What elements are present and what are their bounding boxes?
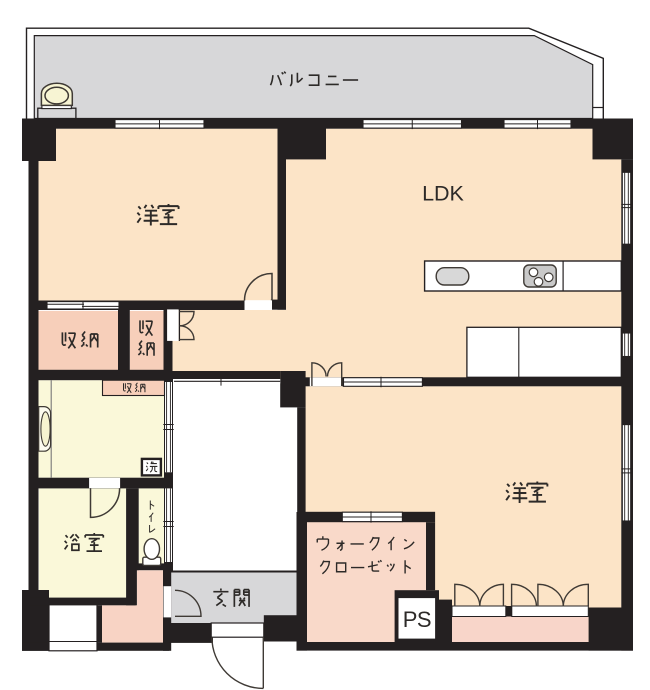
svg-text:LDK: LDK [422,182,464,206]
svg-text:PS: PS [403,607,431,632]
